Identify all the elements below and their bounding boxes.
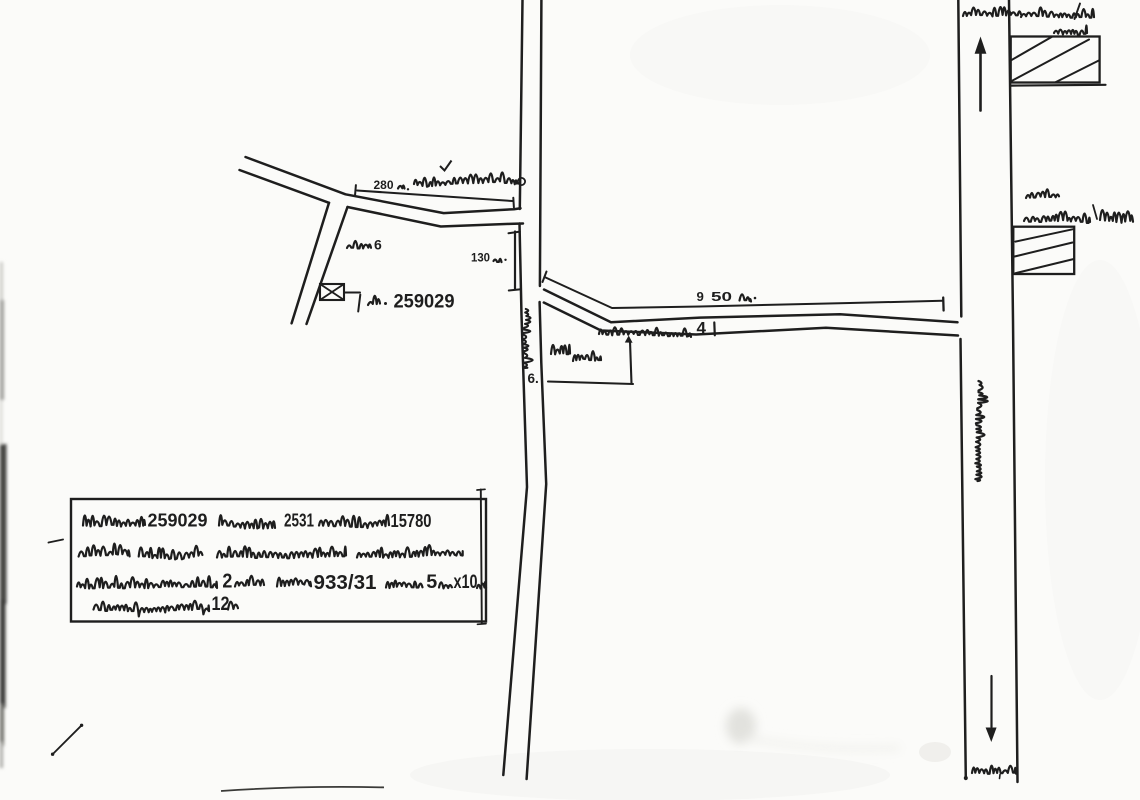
svg-text:2531: 2531 (284, 510, 314, 531)
svg-text:15780: 15780 (391, 510, 432, 531)
svg-text:259029: 259029 (148, 510, 208, 531)
svg-text:2: 2 (222, 571, 232, 593)
svg-text:130: 130 (471, 251, 490, 265)
svg-text:6.: 6. (528, 371, 539, 386)
svg-text:259029: 259029 (394, 291, 455, 313)
svg-text:x10: x10 (454, 572, 478, 593)
svg-text:9: 9 (697, 289, 704, 304)
svg-text:5: 5 (426, 572, 437, 593)
svg-text:933/31: 933/31 (314, 572, 377, 594)
svg-text:50: 50 (711, 289, 732, 304)
svg-text:280: 280 (374, 178, 394, 192)
svg-text:4: 4 (697, 319, 707, 338)
svg-text:12: 12 (212, 594, 230, 615)
svg-text:6: 6 (374, 237, 382, 253)
